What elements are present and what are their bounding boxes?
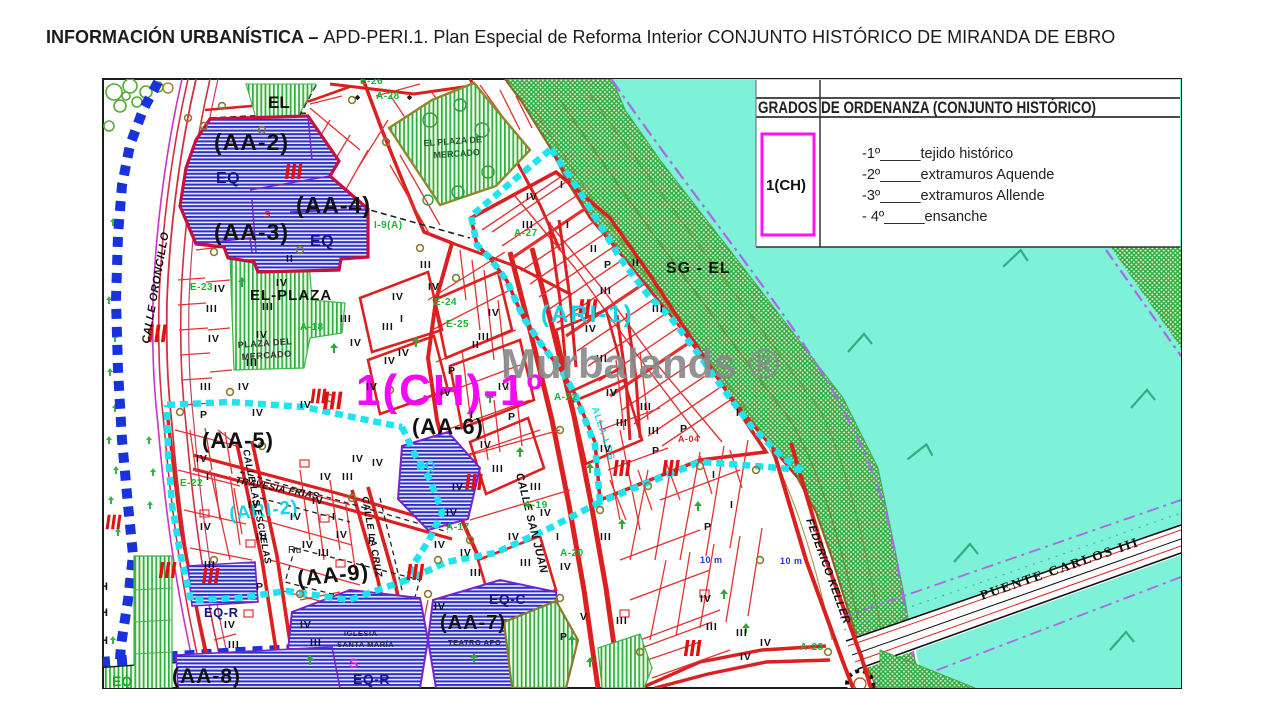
svg-text:II: II [286,253,294,265]
svg-text:IV: IV [320,471,332,483]
svg-text:A-28: A-28 [376,91,400,102]
svg-text:(AA-3): (AA-3) [214,219,289,245]
svg-text:-1º_____tejido histórico: -1º_____tejido histórico [862,146,1013,162]
svg-text:III: III [520,557,532,569]
svg-text:III: III [648,425,660,437]
svg-text:III: III [530,481,542,493]
svg-text:IV: IV [434,539,446,551]
svg-text:III: III [206,303,218,315]
svg-text:10 m: 10 m [700,555,723,565]
svg-text:GRADOS DE ORDENANZA (CONJUNTO: GRADOS DE ORDENANZA (CONJUNTO HISTÓRICO) [758,98,1096,117]
svg-text:IV: IV [200,521,212,533]
svg-text:IV: IV [276,277,288,289]
svg-text:III: III [262,301,274,313]
svg-text:INFORMACIÓN URBANÍSTICA – APD-: INFORMACIÓN URBANÍSTICA – APD-PERI.1. Pl… [46,26,1115,47]
svg-text:IV: IV [336,529,348,541]
svg-text:I: I [736,407,740,419]
svg-text:III: III [640,401,652,413]
svg-text:EQ: EQ [416,458,436,473]
svg-text:IV: IV [302,539,314,551]
svg-text:III: III [470,567,482,579]
svg-text:E-23: E-23 [190,282,213,293]
svg-text:S: S [349,655,359,671]
svg-text:P: P [560,631,568,643]
svg-text:A-23: A-23 [800,642,824,653]
svg-text:E-24: E-24 [434,297,457,308]
svg-text:EQ-R: EQ-R [353,671,390,687]
svg-text:IV: IV [452,481,464,493]
svg-text:IV: IV [460,547,472,559]
svg-text:A-20: A-20 [560,548,584,559]
svg-text:I: I [470,409,474,421]
svg-text:P: P [604,259,612,271]
svg-text:P: P [704,521,712,533]
svg-text:SG - EL: SG - EL [666,260,731,277]
svg-text:EQ-C: EQ-C [489,591,526,607]
svg-text:IV: IV [248,499,260,511]
svg-text:P: P [448,365,456,377]
svg-text:-2º_____extramuros Aquende: -2º_____extramuros Aquende [862,167,1054,183]
svg-text:IV: IV [428,281,440,293]
svg-text:I: I [712,469,716,481]
svg-text:EL: EL [268,93,290,112]
svg-text:IV: IV [434,601,446,613]
svg-text:EQ: EQ [216,170,240,187]
svg-text:IV: IV [208,333,220,345]
svg-text:II: II [632,257,640,269]
svg-text:(AA-8): (AA-8) [172,665,241,688]
svg-text:III: III [204,559,216,571]
svg-text:(AA-4): (AA-4) [296,192,371,218]
svg-text:IV: IV [540,507,552,519]
svg-text:P: P [200,409,208,421]
svg-text:Ru: Ru [288,545,302,556]
svg-text:H: H [100,581,108,593]
svg-text:E-26: E-26 [360,76,383,87]
svg-text:IV: IV [350,337,362,349]
svg-text:IV: IV [398,347,410,359]
svg-text:III: III [256,531,268,543]
svg-text:III: III [652,303,664,315]
svg-text:III: III [340,313,352,325]
svg-text:III: III [600,285,612,297]
svg-text:IV: IV [700,593,712,605]
svg-text:A-04: A-04 [678,434,700,444]
svg-text:IV: IV [224,619,236,631]
svg-text:III: III [616,417,628,429]
svg-text:III: III [246,357,258,369]
svg-text:IV: IV [508,531,520,543]
svg-text:III: III [616,615,628,627]
svg-text:III: III [420,259,432,271]
svg-text:IV: IV [606,387,618,399]
svg-text:IV: IV [560,561,572,573]
svg-text:IV: IV [372,457,384,469]
svg-text:III: III [492,463,504,475]
svg-text:IV: IV [446,507,458,519]
svg-text:I-9(A): I-9(A) [374,220,403,231]
svg-text:IV: IV [740,651,752,663]
svg-text:IV: IV [238,381,250,393]
svg-text:A-18: A-18 [300,322,324,333]
svg-text:IV: IV [252,407,264,419]
svg-text:TEATRO APO: TEATRO APO [448,638,501,647]
svg-text:I: I [560,179,564,191]
svg-text:III: III [600,531,612,543]
svg-text:EQ-R: EQ-R [204,605,239,620]
svg-text:III: III [382,321,394,333]
svg-text:IV: IV [352,453,364,465]
svg-text:H: H [100,607,108,619]
svg-text:I: I [332,511,336,523]
svg-text:(AA-2): (AA-2) [214,129,289,155]
svg-text:IV: IV [214,283,226,295]
svg-text:IV: IV [600,443,612,455]
svg-text:A-22: A-22 [554,392,578,403]
svg-text:III: III [706,621,718,633]
svg-text:- 4º_____ensanche: - 4º_____ensanche [862,209,987,225]
svg-text:IV: IV [392,291,404,303]
svg-text:(AA-7): (AA-7) [440,612,506,634]
svg-text:1(CH): 1(CH) [766,177,806,194]
svg-text:IV: IV [256,329,268,341]
svg-text:III: III [522,219,534,231]
svg-text:I: I [730,499,734,511]
svg-text:IV: IV [480,439,492,451]
svg-text:IV: IV [526,191,538,203]
svg-text:IV: IV [760,637,772,649]
svg-text:IV: IV [488,307,500,319]
svg-text:EQ: EQ [310,233,334,250]
svg-text:III: III [200,381,212,393]
svg-text:I: I [556,531,560,543]
svg-text:P: P [652,445,660,457]
svg-text:III: III [736,627,748,639]
svg-text:(AA-5): (AA-5) [202,428,274,453]
svg-text:I: I [566,219,570,231]
svg-text:EQ: EQ [112,673,132,689]
svg-text:IV: IV [300,619,312,631]
svg-text:E-22: E-22 [180,478,203,489]
svg-text:II: II [590,243,598,255]
svg-text:III: III [478,331,490,343]
svg-text:III: III [342,471,354,483]
svg-text:P: P [256,581,264,593]
svg-text:V: V [580,611,588,623]
svg-text:P: P [680,423,688,435]
svg-text:IV: IV [290,511,302,523]
svg-text:P: P [368,535,376,547]
svg-text:-3º_____extramuros Allende: -3º_____extramuros Allende [862,188,1045,204]
svg-text:10 m: 10 m [780,556,803,566]
svg-text:P: P [508,411,516,423]
svg-text:IGLESIA: IGLESIA [344,629,378,638]
svg-text:IV: IV [384,355,396,367]
svg-text:I: I [400,313,404,325]
svg-text:IV: IV [366,381,378,393]
svg-text:IV: IV [440,387,452,399]
svg-text:III: III [318,547,330,559]
svg-text:IV: IV [196,453,208,465]
svg-text:I: I [206,471,210,483]
svg-text:IV: IV [312,495,324,507]
svg-text:III: III [310,637,322,649]
svg-text:IV: IV [585,323,597,335]
svg-text:SANTA MARÍA: SANTA MARÍA [337,640,394,649]
svg-text:H: H [100,635,108,647]
svg-text:IV: IV [300,399,312,411]
svg-text:E-25: E-25 [446,319,469,330]
svg-text:III: III [228,639,240,651]
svg-text:A-17: A-17 [446,522,470,533]
svg-text:Murbalands ®: Murbalands ® [501,340,779,387]
